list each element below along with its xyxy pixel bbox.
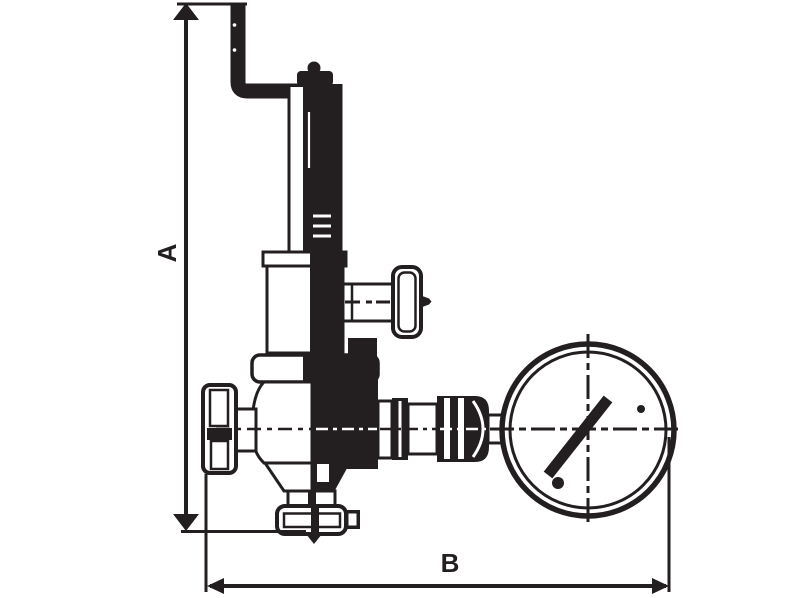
dimension-label-A: A bbox=[152, 243, 182, 262]
arrowhead-up bbox=[173, 3, 199, 20]
pressure-gauge bbox=[490, 334, 678, 526]
arrowhead-left bbox=[207, 578, 224, 594]
dimension-label-B: B bbox=[441, 548, 460, 578]
diagram-canvas: A B bbox=[0, 0, 800, 598]
inlet-pipe-elbow bbox=[233, 4, 300, 91]
spring-housing bbox=[289, 62, 341, 254]
arrowhead-down bbox=[173, 514, 199, 531]
bonnet-cap bbox=[297, 71, 333, 86]
valve-body bbox=[252, 355, 378, 507]
drain-tip bbox=[306, 534, 322, 544]
valve-technical-drawing: A B bbox=[0, 0, 800, 598]
adjusting-screw-handle bbox=[343, 267, 432, 337]
gauge-pivot-dot bbox=[552, 477, 564, 489]
gauge-screw-dot bbox=[637, 405, 645, 413]
arrowhead-right bbox=[652, 578, 669, 594]
bottom-union bbox=[277, 506, 360, 544]
screw-tip bbox=[421, 296, 432, 308]
